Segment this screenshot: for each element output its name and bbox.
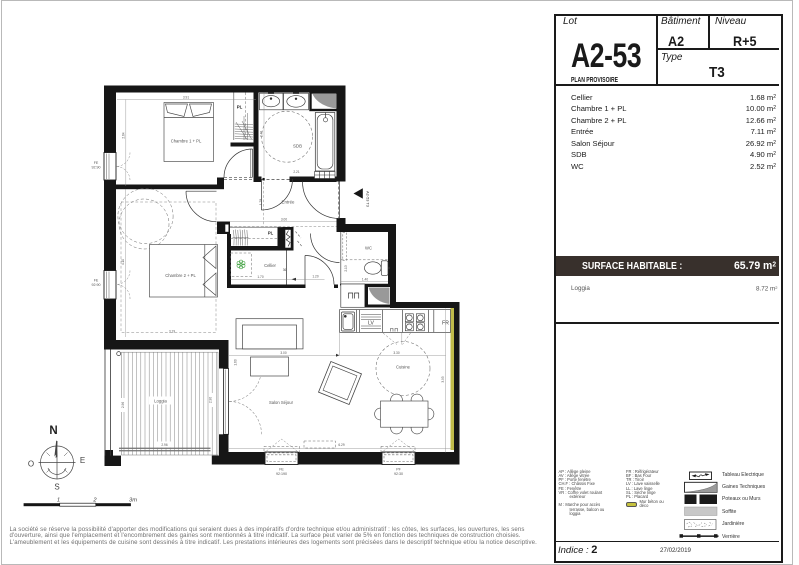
svg-text:Salon Séjour: Salon Séjour [269,400,294,405]
svg-text:WC: WC [365,246,372,251]
svg-text:2: 2 [92,497,97,503]
svg-text:N: N [49,425,57,437]
svg-text:FE: FE [94,279,99,283]
svg-text:2.96: 2.96 [121,402,125,408]
svg-text:Chambre 1 + PL: Chambre 1 + PL [171,139,202,144]
svg-text:1.70: 1.70 [257,275,263,279]
svg-text:E: E [80,456,85,465]
svg-text:Cuisine: Cuisine [396,364,411,369]
svg-text:2.96: 2.96 [161,443,167,447]
svg-text:Chambre 2 + PL: Chambre 2 + PL [165,273,196,278]
svg-text:Loggia: Loggia [154,399,167,404]
svg-text:2.90: 2.90 [208,397,212,403]
svg-text:92:190: 92:190 [276,472,287,476]
svg-text:3m: 3m [129,497,137,503]
svg-text:4.10: 4.10 [121,259,125,265]
svg-text:1.40: 1.40 [362,278,368,282]
svg-text:3.00: 3.00 [280,351,286,355]
svg-text:92:90: 92:90 [92,283,101,287]
svg-text:3.00: 3.00 [281,217,287,221]
svg-text:2.64: 2.64 [121,132,125,138]
svg-text:1.60: 1.60 [233,359,237,365]
svg-text:3.91: 3.91 [183,96,189,100]
svg-text:Entrée: Entrée [282,200,295,205]
svg-text:2.40: 2.40 [260,131,264,137]
svg-text:1.20: 1.20 [312,274,318,278]
svg-text:Cellier: Cellier [264,263,276,268]
svg-text:1.78: 1.78 [259,199,263,205]
svg-text:1: 1 [57,497,60,503]
svg-text:LV: LV [368,320,374,326]
svg-text:S: S [54,483,59,492]
svg-text:A2-53 T3: A2-53 T3 [366,191,371,207]
svg-text:SDB: SDB [293,144,302,149]
svg-text:PF: PF [396,468,401,472]
svg-text:FE: FE [279,468,284,472]
svg-text:2.21: 2.21 [293,170,299,174]
svg-text:92:30: 92:30 [394,472,403,476]
svg-text:92:90: 92:90 [92,166,101,170]
svg-text:PL: PL [268,231,274,236]
svg-text:36: 36 [283,268,287,272]
svg-text:6.29: 6.29 [338,443,344,447]
svg-text:3.19: 3.19 [169,329,175,333]
svg-text:O: O [28,460,34,469]
svg-text:FE: FE [94,161,99,165]
svg-text:PL: PL [237,104,243,109]
svg-text:2.13: 2.13 [344,265,348,271]
svg-text:3.30: 3.30 [393,351,399,355]
svg-text:3.93: 3.93 [441,376,445,382]
